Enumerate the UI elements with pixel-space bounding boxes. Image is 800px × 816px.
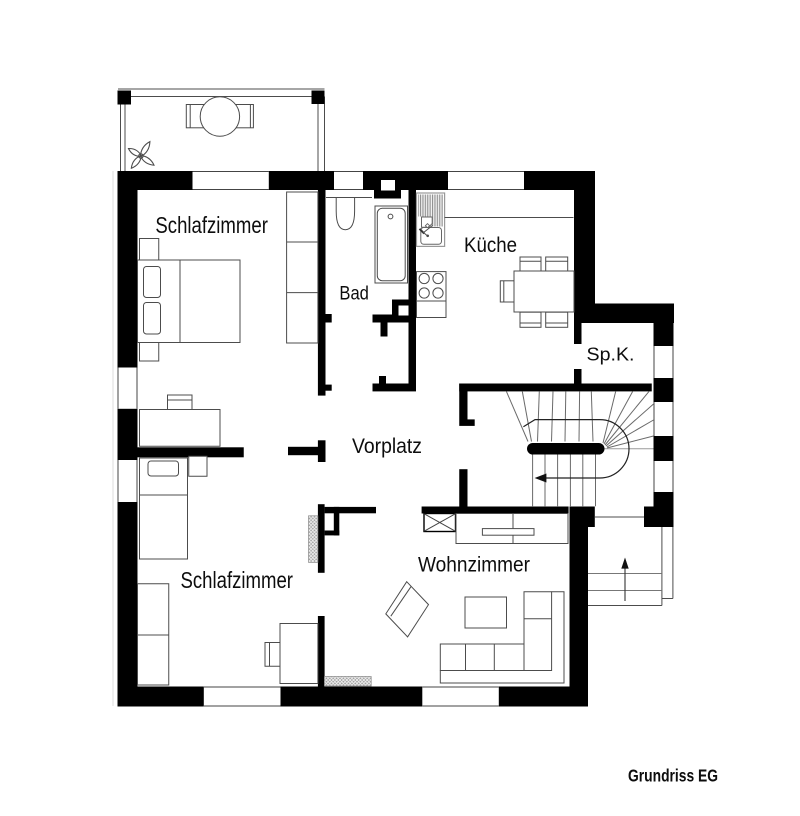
svg-text:Grundriss EG: Grundriss EG [628, 766, 718, 786]
svg-text:Vorplatz: Vorplatz [352, 435, 422, 458]
svg-text:Wohnzimmer: Wohnzimmer [418, 553, 530, 577]
svg-text:Schlafzimmer: Schlafzimmer [155, 212, 268, 238]
svg-text:Sp.K.: Sp.K. [587, 344, 635, 365]
svg-text:Küche: Küche [464, 233, 517, 257]
svg-text:Schlafzimmer: Schlafzimmer [181, 567, 294, 593]
svg-text:Bad: Bad [339, 284, 369, 305]
